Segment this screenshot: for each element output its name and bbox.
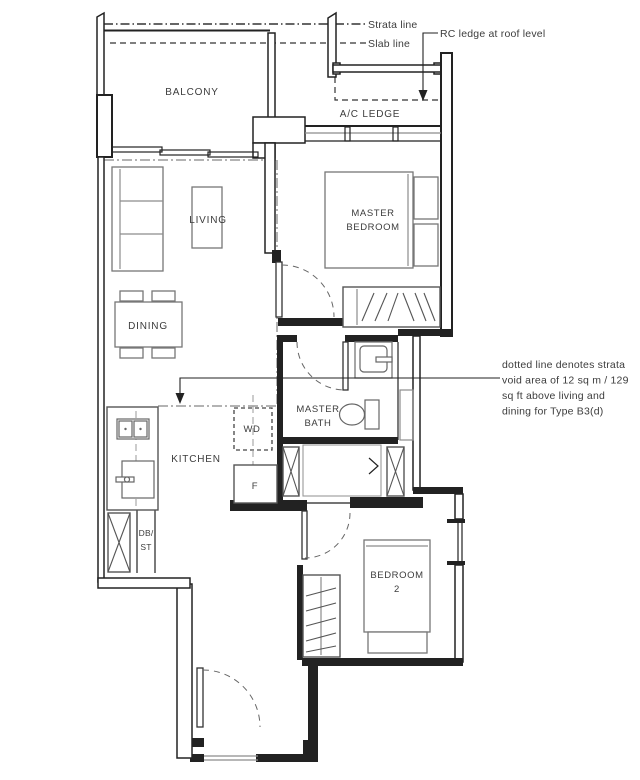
master-bath-label-2: BATH — [304, 418, 331, 429]
bedroom2-window-sill-bottom — [447, 561, 465, 565]
master-bed — [325, 172, 413, 268]
dining-chair-1 — [120, 291, 143, 301]
bedroom2-furniture — [303, 540, 430, 657]
shower-head-symbol — [369, 458, 378, 474]
strata-void-note-1: dotted line denotes strata — [502, 359, 625, 371]
entry-left-wall — [177, 584, 192, 758]
master-bath-label-1: MASTER — [296, 404, 339, 415]
right-wall-master — [441, 53, 452, 336]
bedroom2-label-2: 2 — [394, 584, 400, 595]
master-bedroom-furniture — [325, 172, 440, 327]
floor-plan-svg: BALCONY A/C LEDGE LIVING DINING KITCHEN … — [0, 0, 640, 780]
master-bedroom-door-leaf — [276, 262, 282, 317]
bedroom2-right-wall-lower — [455, 565, 463, 662]
bedroom2-left-wall — [297, 565, 303, 660]
entry-right-wall — [308, 666, 318, 744]
shower-area — [303, 445, 381, 496]
floor-plan: BALCONY A/C LEDGE LIVING DINING KITCHEN … — [0, 0, 640, 780]
slab-line-label: Slab line — [368, 38, 410, 50]
master-bath-door-leaf — [343, 342, 348, 390]
balcony-left-wall — [97, 95, 112, 157]
bedroom2-right-wall-upper — [455, 494, 463, 519]
stove-knob — [125, 477, 130, 482]
bedroom2-label-1: BEDROOM — [370, 570, 423, 581]
strata-void-note-3: sq ft above living and — [502, 390, 605, 402]
rc-ledge-label: RC ledge at roof level — [440, 28, 545, 40]
sink-drain-left — [124, 428, 126, 430]
bedroom2-bottom-wall — [302, 658, 463, 666]
balcony-label: BALCONY — [165, 87, 218, 98]
dining-chair-4 — [152, 348, 175, 358]
bath-bottom-wall — [278, 437, 398, 444]
bottom-wall-right — [256, 754, 310, 762]
master-top-left-wall — [253, 117, 305, 143]
bedroom2-door-leaf — [302, 511, 307, 559]
vanity-faucet — [376, 357, 392, 362]
toilet-bowl — [340, 404, 365, 425]
dining-chair-3 — [120, 348, 143, 358]
master-bedroom-label-2: BEDROOM — [346, 222, 399, 233]
balcony-slider-panel-2 — [160, 150, 210, 155]
balcony-slider-panel-1 — [112, 147, 162, 152]
strata-void-arrowhead — [176, 393, 185, 404]
dining-label: DINING — [128, 321, 168, 332]
shower-strip-bottom-wall — [350, 497, 423, 508]
master-bedroom-label-1: MASTER — [351, 208, 394, 219]
strata-void-leader — [180, 378, 500, 395]
kitchen-bottom-wall — [98, 578, 190, 588]
master-bedroom-door-arc — [282, 265, 334, 317]
balcony-slider-panel-3 — [208, 152, 258, 157]
left-wall — [98, 157, 104, 582]
balcony-left-wall-top — [97, 13, 104, 95]
bedroom2-bed-bench — [368, 632, 427, 653]
master-left-wall — [265, 143, 275, 253]
bath-top-wall-right — [345, 335, 398, 342]
ac-ledge-dashed-boundary — [335, 77, 441, 100]
db-store-label-2: ST — [140, 542, 151, 552]
entry-door-leaf — [197, 668, 203, 727]
bedside-table-1 — [414, 177, 438, 219]
db-store-label-1: DB/ — [139, 528, 154, 538]
bath-kitchen-divider — [277, 335, 283, 503]
master-window-mullion-2 — [393, 127, 398, 141]
bedroom2-window-sill-top — [447, 519, 465, 523]
corridor-bath-wall — [278, 318, 345, 326]
entry-door-arc — [203, 670, 260, 727]
dining-chair-2 — [152, 291, 175, 301]
washer-dryer-label: WD — [243, 424, 260, 435]
wall-step-bath — [398, 329, 452, 336]
entry-door-jamb — [192, 738, 204, 747]
fridge-label: F — [252, 481, 258, 492]
rc-ledge-band — [333, 65, 441, 72]
master-window-mullion-1 — [345, 127, 350, 141]
strata-void-note-4: dining for Type B3(d) — [502, 406, 603, 418]
strata-line-label: Strata line — [368, 19, 417, 31]
toilet-tank — [365, 400, 379, 429]
master-door-jamb — [272, 250, 281, 263]
sink-drain-right — [139, 428, 141, 430]
balcony-right-wall — [268, 33, 275, 118]
bedside-table-2 — [414, 224, 438, 266]
living-label: LIVING — [189, 215, 227, 226]
bath-duct — [400, 390, 413, 440]
rc-ledge-arrowhead — [419, 90, 428, 101]
strata-void-note-2: void area of 12 sq m / 129 — [502, 375, 629, 387]
kitchen-label: KITCHEN — [171, 454, 221, 465]
master-bath-door-arc — [297, 342, 345, 390]
bath-right-wall — [413, 336, 420, 490]
wall-step-bedroom2 — [413, 487, 463, 494]
bedroom2-door-arc — [305, 513, 350, 558]
ac-ledge-label: A/C LEDGE — [340, 109, 401, 120]
